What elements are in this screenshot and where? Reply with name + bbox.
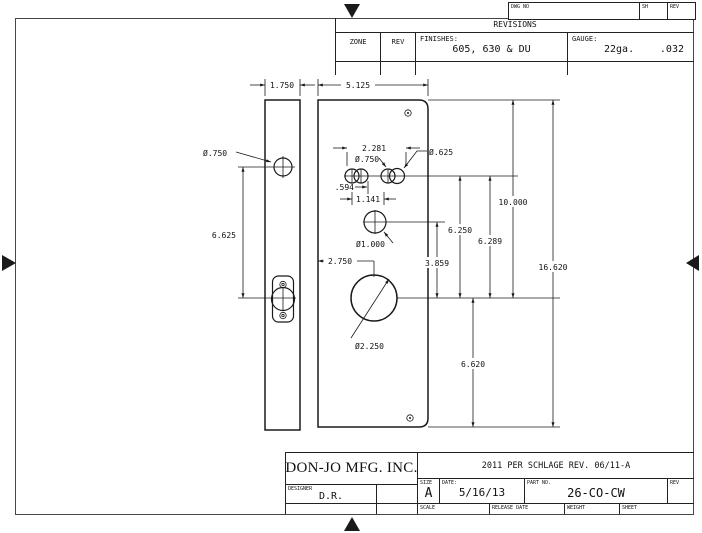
size-cell: SIZE A — [418, 479, 440, 503]
gauge-decimal: .032 — [660, 44, 684, 55]
scale-label: SCALE — [418, 504, 489, 511]
designer-cell: DESIGNER D.R. — [286, 485, 376, 503]
rev-header: REV — [381, 33, 416, 61]
zone-header: ZONE — [336, 33, 381, 61]
weight-label: WEIGHT — [565, 504, 619, 511]
dwg-no-label: DWG NO — [509, 3, 639, 10]
sheet-label: SHEET — [620, 504, 694, 511]
designer-row: DESIGNER D.R. — [286, 485, 417, 504]
rev-cell-label: REV — [668, 479, 694, 486]
center-mark-left-icon — [2, 255, 16, 271]
strip-rev-cell: REV — [667, 3, 695, 19]
latch-screw-hole-top — [280, 281, 286, 287]
dim-edge-to-cyl: 10.000 — [499, 198, 528, 207]
rev-cell: REV — [668, 479, 694, 503]
gauge-cell: GAUGE: 22ga. .032 — [568, 33, 694, 61]
center-mark-top-icon — [344, 4, 360, 18]
spindle-hole — [363, 210, 445, 234]
dim-side-hole-span: 6.625 — [212, 231, 236, 240]
rev-label: REV — [668, 3, 695, 10]
date-label: DATE: — [440, 479, 524, 486]
dim-top-holes-spacing: 2.281 — [362, 144, 386, 153]
finishes-value: 605, 630 & DU — [416, 44, 567, 55]
side-plate-view — [238, 100, 300, 430]
part-no-label: PART NO. — [525, 479, 667, 486]
dim-offset-594: .594 — [335, 183, 354, 192]
designer-value: D.R. — [286, 491, 376, 502]
dim-main-plate-width: 5.125 — [346, 81, 370, 90]
title-block: DON-JO MFG. INC. DESIGNER D.R. 2011 PER … — [285, 452, 694, 514]
company-name: DON-JO MFG. INC. — [286, 453, 417, 485]
dia-side-plate-hole: Ø.750 — [203, 148, 227, 158]
dia-top-hole: Ø.750 — [355, 154, 379, 164]
dim-top-to-cyl-b: 6.289 — [478, 237, 502, 246]
dia-top-hole-small: Ø.625 — [429, 147, 453, 157]
title-block-left-bottom — [286, 504, 417, 514]
center-mark-bottom-icon — [344, 517, 360, 531]
release-date-label: RELEASE DATE — [490, 504, 564, 511]
title-block-bottom-row: SCALE RELEASE DATE WEIGHT SHEET — [418, 504, 694, 514]
sh-label: SH — [640, 3, 667, 10]
revisions-table: REVISIONS ZONE REV FINISHES: 605, 630 & … — [335, 18, 694, 75]
dimension-annotations: 1.750 5.125 6.625 Ø.750 2.281 Ø.750 Ø.6 — [203, 79, 569, 427]
dim-cyl-offset: 2.750 — [328, 257, 352, 266]
sheet-border — [16, 19, 694, 515]
gauge-label: GAUGE: — [568, 33, 694, 43]
revision-note: 2011 PER SCHLAGE REV. 06/11-A — [418, 453, 694, 479]
strip-sh-cell: SH — [639, 3, 667, 19]
center-mark-right-icon — [686, 255, 699, 271]
part-no-cell: PART NO. 26-CO-CW — [525, 479, 668, 503]
revisions-header-row: ZONE REV FINISHES: 605, 630 & DU GAUGE: … — [336, 33, 694, 62]
dim-top-to-cyl-a: 6.250 — [448, 226, 472, 235]
latch-screw-hole-bottom — [280, 312, 286, 318]
title-block-left: DON-JO MFG. INC. DESIGNER D.R. — [286, 453, 418, 514]
revisions-title: REVISIONS — [336, 18, 694, 33]
cylinder-hole — [351, 261, 560, 321]
dia-cylinder-hole: Ø2.250 — [355, 341, 384, 351]
finishes-cell: FINISHES: 605, 630 & DU — [416, 33, 568, 61]
dim-cyl-to-bottom: 6.620 — [461, 360, 485, 369]
designer-label: DESIGNER — [286, 485, 312, 492]
dim-side-plate-width: 1.750 — [270, 81, 294, 90]
latch-cutout — [238, 276, 296, 322]
dim-mid-to-cyl: 3.859 — [425, 259, 449, 268]
drawing-sheet: 1.750 5.125 6.625 Ø.750 2.281 Ø.750 Ø.6 — [0, 0, 702, 533]
dim-plate-height: 16.620 — [539, 263, 568, 272]
revisions-empty-row — [336, 62, 694, 75]
title-block-right: 2011 PER SCHLAGE REV. 06/11-A SIZE A DAT… — [418, 453, 694, 514]
size-value: A — [418, 486, 439, 501]
date-value: 5/16/13 — [440, 486, 524, 499]
size-label: SIZE — [418, 479, 439, 486]
title-block-mid-row: SIZE A DATE: 5/16/13 PART NO. 26-CO-CW R… — [418, 479, 694, 504]
mounting-holes — [344, 169, 518, 184]
dia-spindle-hole: Ø1.000 — [356, 239, 385, 249]
strip-dwg-no-cell: DWG NO — [509, 3, 639, 19]
part-no-value: 26-CO-CW — [525, 486, 667, 500]
gauge-thickness: 22ga. — [604, 44, 634, 55]
designer-empty-cell — [376, 485, 417, 503]
date-cell: DATE: 5/16/13 — [440, 479, 525, 503]
dim-offset-1141: 1.141 — [356, 195, 380, 204]
finishes-label: FINISHES: — [416, 33, 567, 43]
